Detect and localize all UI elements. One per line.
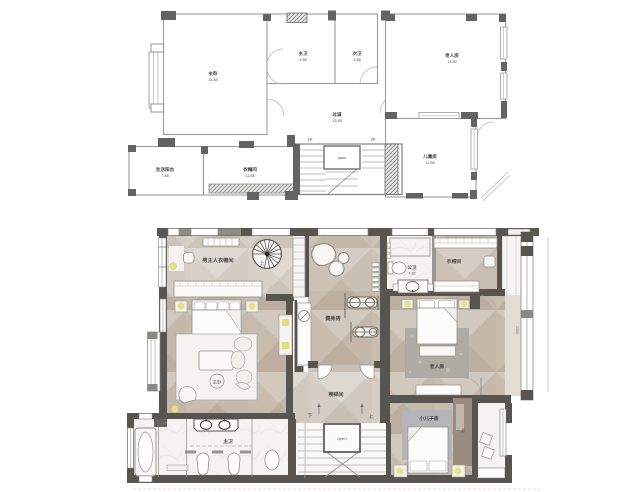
svg-text:2380: 2380 (515, 326, 519, 334)
svg-text:11.88: 11.88 (245, 174, 254, 178)
svg-text:4.88: 4.88 (409, 272, 416, 276)
svg-text:过道: 过道 (332, 112, 342, 117)
svg-text:衣帽间: 衣帽间 (446, 258, 462, 265)
svg-text:主卫: 主卫 (298, 51, 308, 56)
svg-text:上: 上 (259, 260, 264, 267)
svg-text:儿童房: 儿童房 (422, 153, 437, 159)
svg-text:老人房: 老人房 (429, 363, 445, 370)
svg-text:下: 下 (307, 413, 312, 419)
svg-text:13.80: 13.80 (447, 60, 457, 64)
svg-text:次卫: 次卫 (352, 51, 362, 56)
svg-text:老人房: 老人房 (444, 53, 459, 58)
svg-text:主卫: 主卫 (223, 438, 233, 445)
svg-text:11.88: 11.88 (425, 161, 434, 165)
svg-text:open: open (337, 436, 347, 441)
svg-text:上: 上 (461, 428, 466, 433)
svg-text:楼梯间: 楼梯间 (328, 391, 343, 398)
svg-text:衣帽间: 衣帽间 (242, 167, 257, 172)
svg-text:11.88: 11.88 (208, 78, 217, 82)
svg-text:13.88: 13.88 (332, 119, 342, 123)
svg-text:4.88: 4.88 (353, 58, 360, 62)
svg-text:健身房: 健身房 (325, 315, 341, 322)
svg-text:7.88: 7.88 (161, 174, 168, 178)
svg-text:2F: 2F (371, 137, 376, 142)
svg-text:生活阳台: 生活阳台 (156, 167, 175, 172)
svg-text:主卧: 主卧 (208, 71, 218, 76)
svg-text:open: open (338, 156, 346, 160)
svg-text:男主人衣帽间: 男主人衣帽间 (202, 257, 233, 264)
svg-text:主卧: 主卧 (212, 380, 222, 385)
svg-text:上: 上 (368, 413, 373, 420)
svg-text:公卫: 公卫 (407, 265, 417, 270)
svg-text:小儿子房: 小儿子房 (418, 415, 438, 422)
svg-text:4.88: 4.88 (299, 58, 306, 62)
svg-text:1F: 1F (308, 137, 313, 142)
